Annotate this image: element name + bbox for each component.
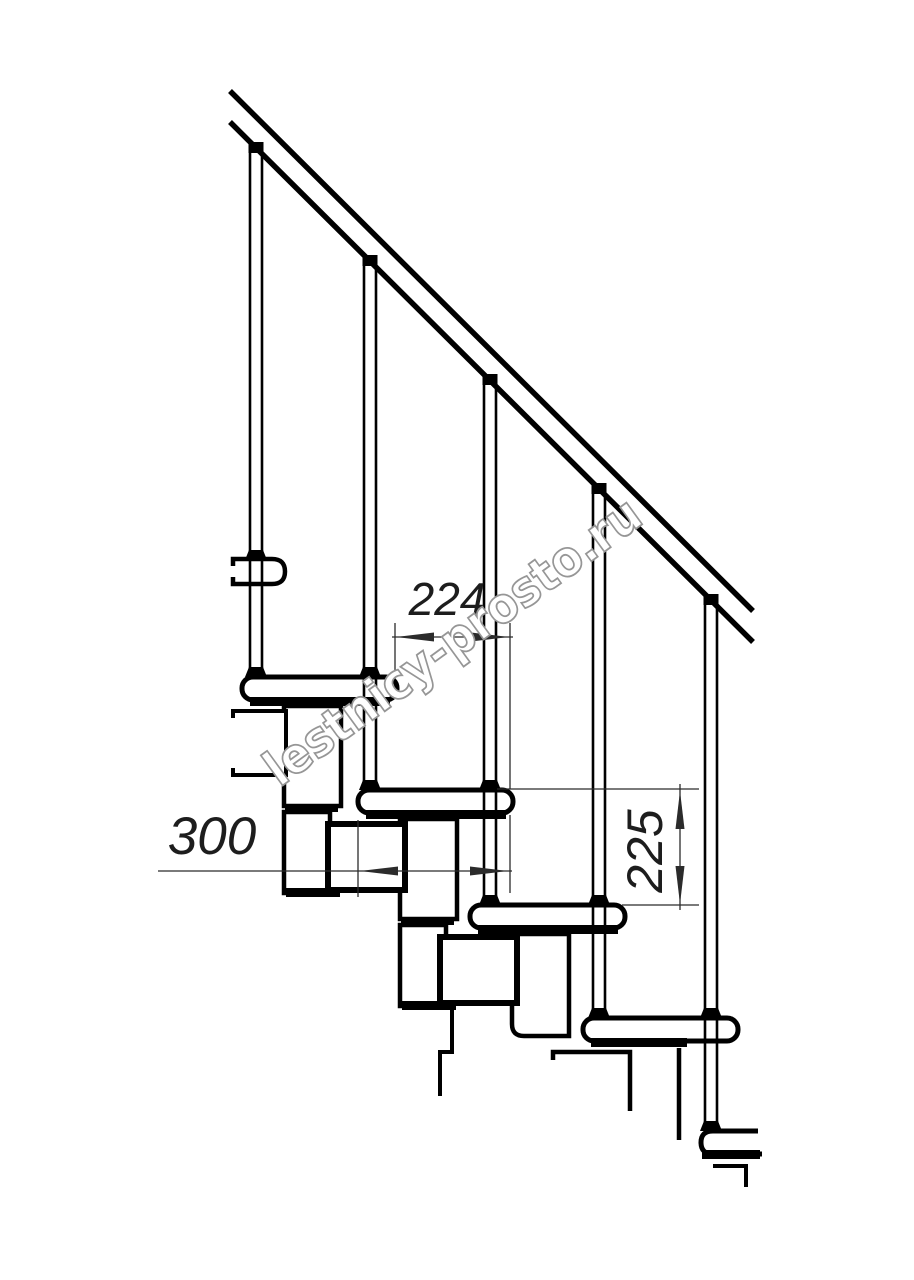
upper-tread-end-bracket	[233, 559, 285, 584]
module-chain	[284, 706, 746, 1187]
baluster-foot	[245, 667, 267, 677]
module-edge-cut	[440, 1010, 452, 1096]
tread-2	[358, 790, 513, 813]
module-box-cut	[512, 934, 569, 1036]
baluster-collar	[245, 550, 267, 560]
arrow-right	[470, 867, 508, 876]
tread-3	[470, 905, 625, 928]
handrail-bottom-edge	[230, 122, 753, 642]
baluster	[245, 142, 267, 677]
tread-4	[583, 1018, 738, 1041]
baluster-collar	[588, 895, 610, 905]
module-square	[440, 937, 517, 1003]
dimension-step-rise: 225	[497, 784, 699, 910]
module-box	[400, 819, 457, 919]
module-edge-cut	[713, 1166, 746, 1187]
arrow-up	[676, 791, 685, 829]
under-strip	[702, 1150, 760, 1159]
module-box	[284, 812, 330, 893]
staircase-drawing-page: 224 300 225 lestnicy-prosto.ru	[0, 0, 914, 1280]
module-square	[328, 824, 405, 890]
baluster-foot	[359, 780, 381, 790]
baluster-foot	[479, 895, 501, 905]
handrail-top-edge	[230, 91, 753, 611]
baluster-collar	[700, 1008, 722, 1018]
dimension-value: 300	[168, 807, 257, 866]
under-strip	[591, 1038, 687, 1047]
staircase-technical-drawing: 224 300 225 lestnicy-prosto.ru	[0, 0, 914, 1280]
baluster-foot	[700, 1121, 722, 1131]
baluster-foot	[588, 1008, 610, 1018]
handrail	[230, 91, 753, 642]
arrow-down	[676, 866, 685, 904]
module-square-cut	[553, 1052, 630, 1111]
dimension-value: 225	[617, 809, 673, 894]
baluster	[700, 594, 722, 1131]
